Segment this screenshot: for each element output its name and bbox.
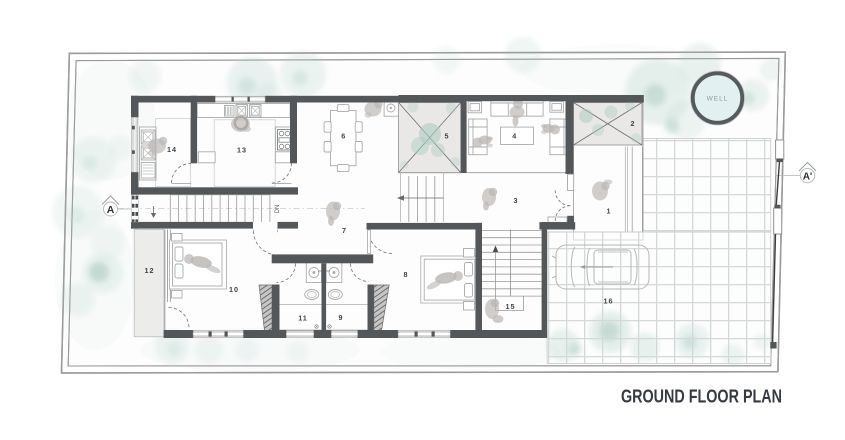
- svg-text:8: 8: [404, 270, 409, 279]
- svg-text:4: 4: [512, 131, 517, 140]
- svg-text:14: 14: [167, 145, 177, 154]
- svg-text:12: 12: [145, 266, 155, 275]
- svg-text:A: A: [107, 204, 115, 216]
- svg-text:15: 15: [506, 302, 516, 311]
- svg-text:7: 7: [342, 226, 347, 235]
- svg-text:3: 3: [514, 196, 519, 205]
- svg-text:DN: DN: [275, 205, 281, 214]
- svg-text:1: 1: [607, 207, 612, 216]
- svg-text:5: 5: [445, 131, 450, 140]
- svg-text:11: 11: [298, 314, 308, 323]
- svg-text:13: 13: [237, 146, 247, 155]
- svg-text:A': A': [803, 171, 813, 182]
- svg-text:GROUND FLOOR PLAN: GROUND FLOOR PLAN: [621, 387, 782, 407]
- svg-text:16: 16: [604, 297, 614, 306]
- svg-text:10: 10: [229, 285, 239, 294]
- svg-text:WELL: WELL: [707, 96, 729, 103]
- svg-text:6: 6: [341, 131, 346, 140]
- svg-text:9: 9: [339, 313, 344, 322]
- svg-text:2: 2: [631, 119, 636, 128]
